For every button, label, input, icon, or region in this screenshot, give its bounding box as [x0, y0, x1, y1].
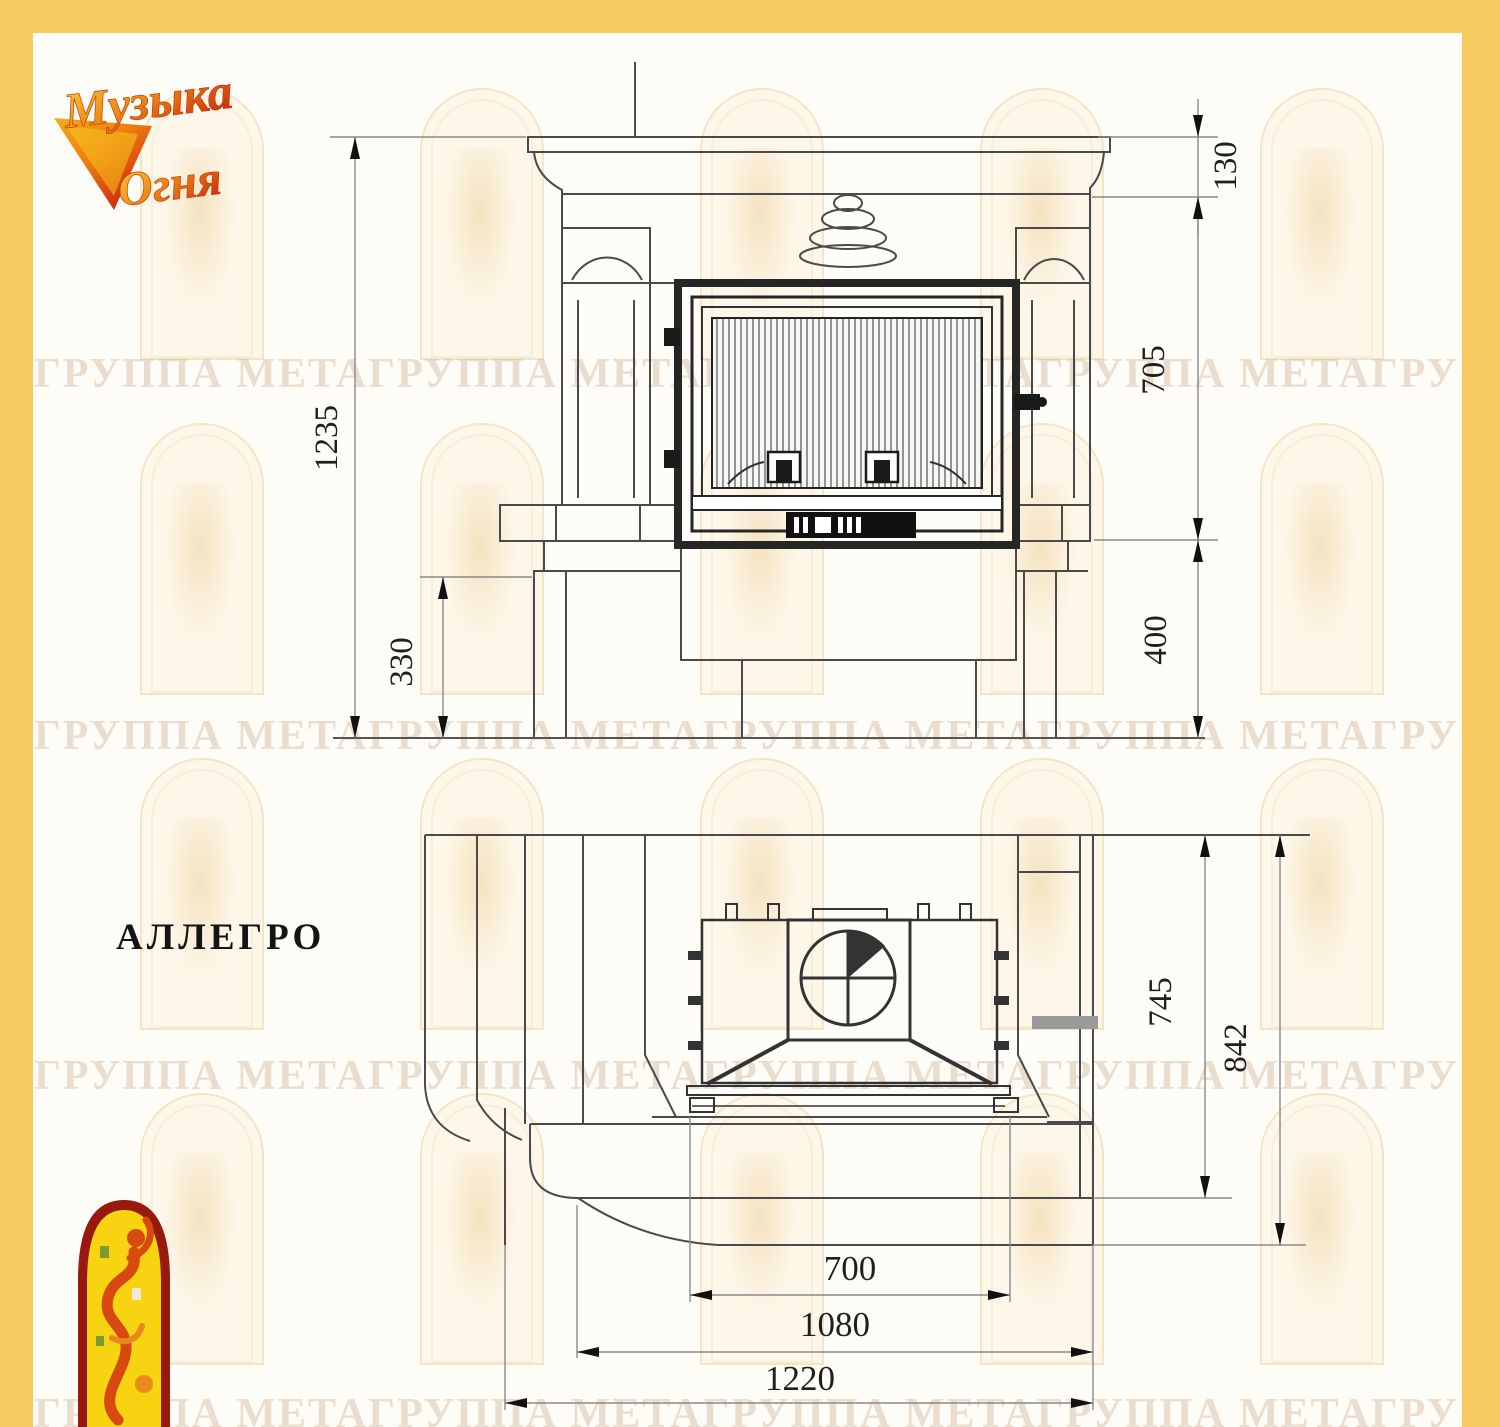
dim-inner-width: 1080 — [800, 1305, 870, 1344]
product-name-label: АЛЛЕГРО — [116, 916, 325, 959]
brand-line2: Огня — [115, 152, 224, 217]
plan-view-drawing: 745 842 700 1080 1220 — [380, 808, 1340, 1427]
watermark-arch — [140, 423, 264, 695]
dim-total-depth: 842 — [1218, 1023, 1254, 1073]
door-handle — [1014, 394, 1047, 410]
watermark-arch — [1260, 88, 1384, 360]
dim-depth-to-bench-front: 745 — [1143, 977, 1179, 1027]
catalog-page: ГРУППА МЕТАГРУППА МЕТАГРУППА МЕТАГРУППА … — [0, 0, 1500, 1427]
dim-base-height: 400 — [1138, 615, 1174, 665]
firebox-front — [664, 283, 1047, 545]
brand-line1: Музыка — [60, 68, 236, 139]
emblem-logo-fire-dancer — [72, 1188, 176, 1427]
dim-shelf-band-height: 130 — [1208, 141, 1244, 191]
dim-opening-width: 700 — [824, 1249, 877, 1288]
watermark-arch-figure — [164, 483, 236, 643]
watermark-arch — [140, 758, 264, 1030]
dim-opening-height: 705 — [1136, 345, 1172, 395]
flue-outlet-icon — [801, 931, 895, 1025]
door-hinge-icon — [664, 328, 680, 346]
watermark-arch — [1260, 423, 1384, 695]
dim-side-step-height: 330 — [384, 637, 420, 687]
dim-total-height: 1235 — [309, 405, 345, 471]
firebox-insert-plan — [687, 904, 1018, 1112]
frame-left-band — [0, 0, 33, 1427]
watermark-arch-figure — [1284, 483, 1356, 643]
door-hinge-icon — [664, 450, 680, 468]
brand-logo-music-of-fire: Музыка Огня — [50, 68, 288, 236]
frame-top-band — [0, 0, 1500, 33]
frame-right-band — [1462, 0, 1500, 1427]
right-wall-ledge — [1032, 1016, 1098, 1029]
watermark-arch-figure — [1284, 148, 1356, 308]
firebox-glass — [712, 318, 982, 488]
vent-grille — [786, 512, 916, 538]
dim-total-width: 1220 — [765, 1359, 835, 1398]
front-elevation-drawing: 1235 330 130 705 400 — [300, 40, 1260, 760]
